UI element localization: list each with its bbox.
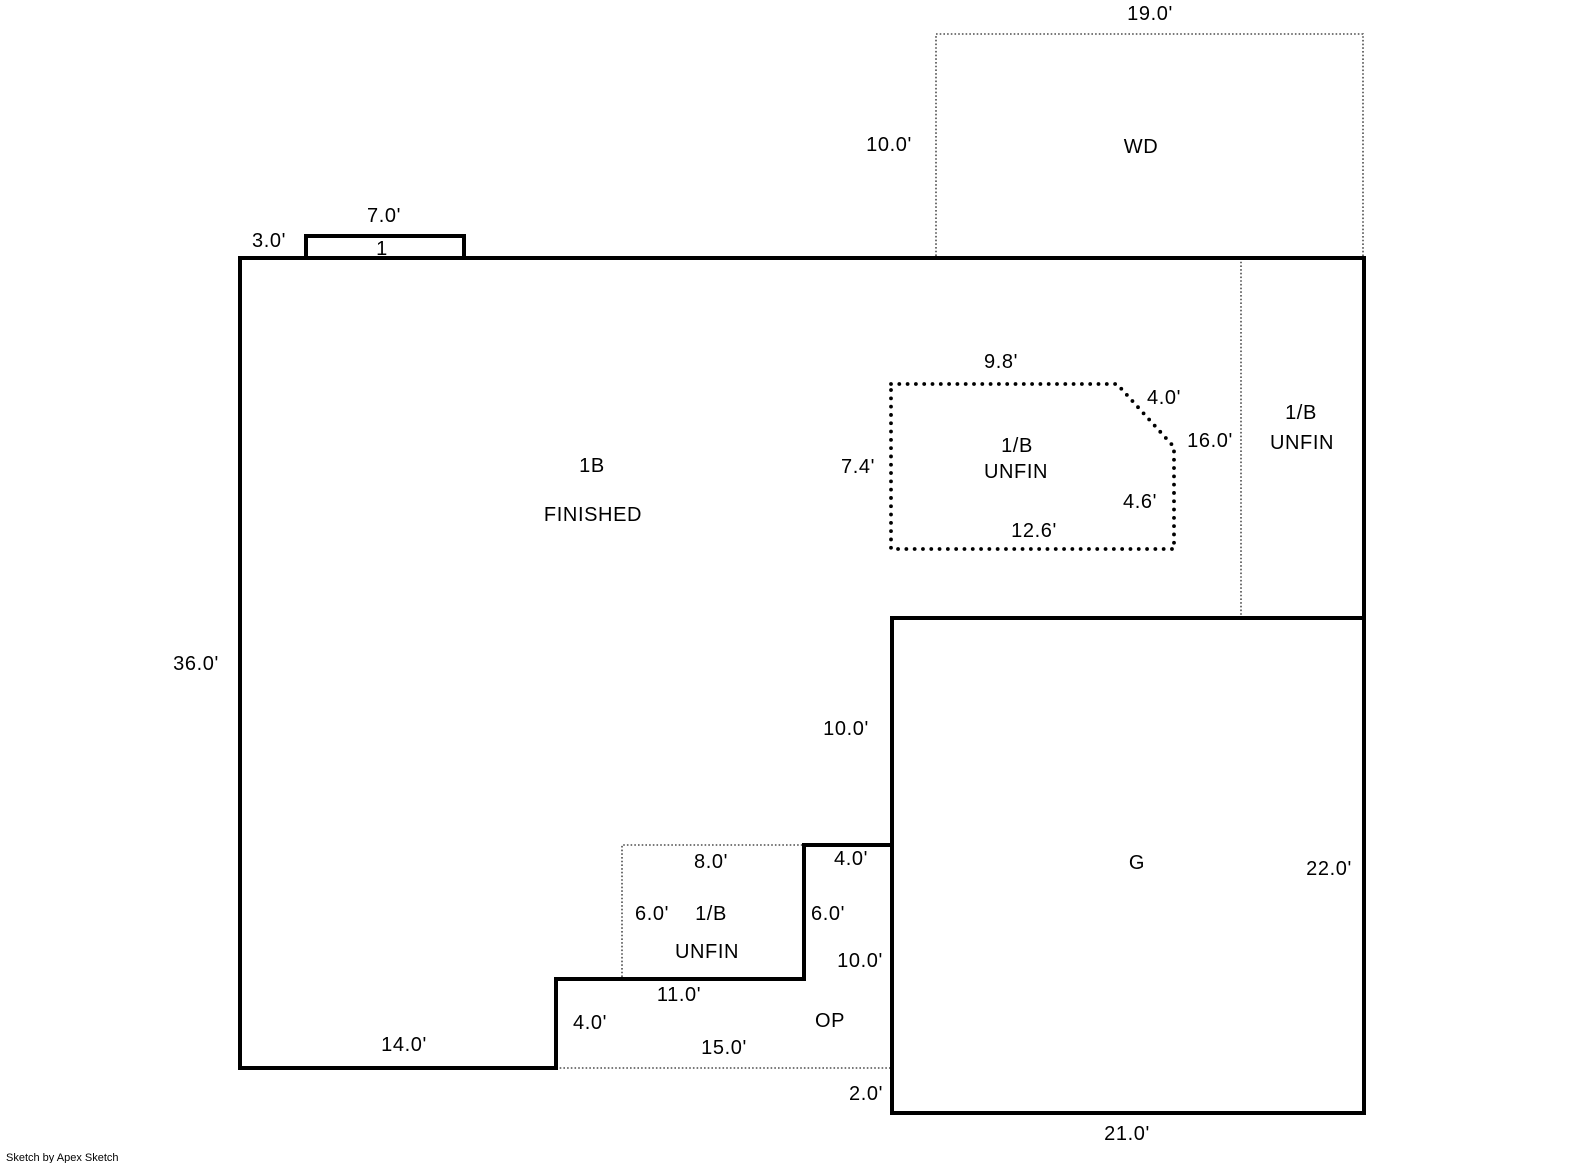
svg-text:6.0': 6.0' [811,903,845,925]
svg-text:9.8': 9.8' [984,351,1018,373]
svg-text:7.4': 7.4' [841,456,875,478]
svg-text:1B: 1B [579,455,605,477]
svg-text:10.0': 10.0' [837,950,883,972]
svg-text:WD: WD [1124,136,1159,158]
svg-text:1/B: 1/B [695,903,727,925]
svg-text:16.0': 16.0' [1187,430,1233,452]
svg-text:14.0': 14.0' [381,1034,427,1056]
svg-text:4.0': 4.0' [834,848,868,870]
svg-text:1: 1 [376,238,388,260]
svg-text:UNFIN: UNFIN [984,461,1048,483]
svg-text:1/B: 1/B [1001,435,1033,457]
svg-text:1/B: 1/B [1285,402,1317,424]
svg-text:FINISHED: FINISHED [544,504,642,526]
svg-text:4.6': 4.6' [1123,491,1157,513]
svg-text:11.0': 11.0' [657,984,701,1006]
svg-text:10.0': 10.0' [866,134,912,156]
svg-text:4.0': 4.0' [573,1012,607,1034]
svg-text:6.0': 6.0' [635,903,669,925]
svg-text:22.0': 22.0' [1306,858,1352,880]
svg-text:36.0': 36.0' [173,653,219,675]
svg-text:G: G [1129,852,1145,874]
svg-text:19.0': 19.0' [1127,3,1173,25]
svg-text:7.0': 7.0' [367,205,401,227]
svg-text:Sketch by Apex Sketch: Sketch by Apex Sketch [6,1152,119,1163]
svg-text:3.0': 3.0' [252,230,286,252]
svg-text:12.6': 12.6' [1011,520,1057,542]
svg-text:UNFIN: UNFIN [1270,432,1334,454]
svg-text:21.0': 21.0' [1104,1123,1150,1145]
svg-text:2.0': 2.0' [849,1083,883,1105]
svg-text:4.0': 4.0' [1147,387,1181,409]
svg-text:15.0': 15.0' [701,1037,747,1059]
svg-text:10.0': 10.0' [823,718,869,740]
svg-text:8.0': 8.0' [694,851,728,873]
svg-text:UNFIN: UNFIN [675,941,739,963]
svg-text:OP: OP [815,1010,845,1032]
